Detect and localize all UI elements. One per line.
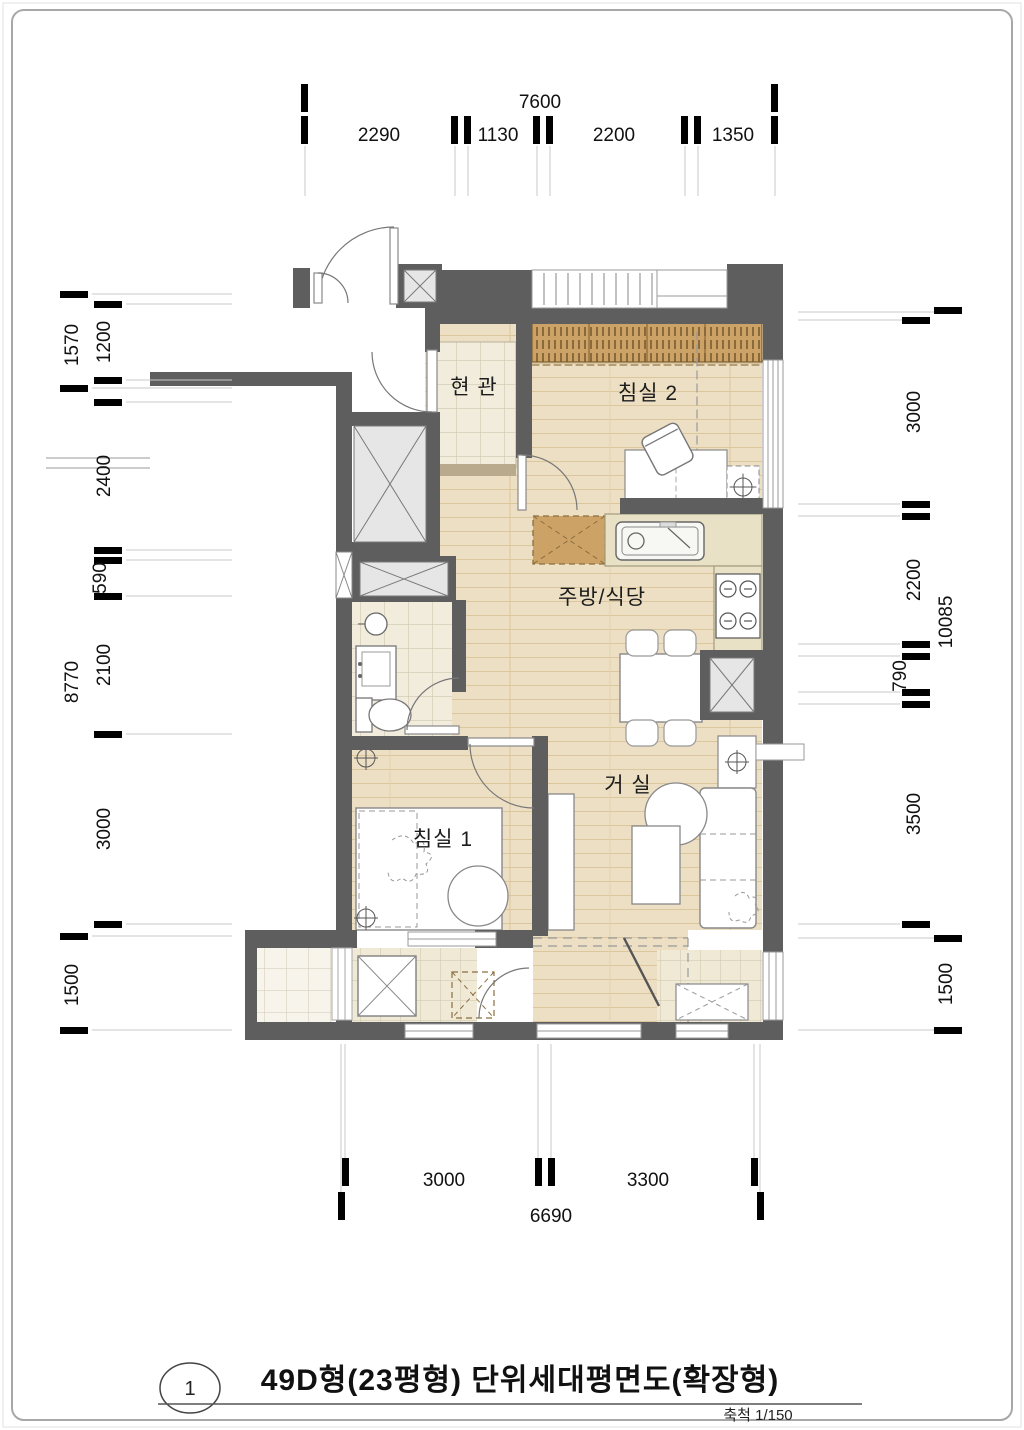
wall-hall-left-block <box>293 268 310 308</box>
dim-top-4: 1350 <box>712 125 754 146</box>
utility-door-arc <box>479 968 529 1018</box>
label-bedroom1: 침실 1 <box>413 828 473 851</box>
wall-top-main <box>425 306 783 324</box>
shower-head <box>365 613 387 635</box>
dim-bottom-total: 6690 <box>530 1206 572 1227</box>
drawing-number: 1 <box>184 1378 195 1400</box>
dim-right-inner-2: 2200 <box>904 559 925 601</box>
kitchen-sink <box>616 522 704 560</box>
entry-tile-floor <box>430 342 516 468</box>
dim-left-inner-5: 3000 <box>94 808 115 850</box>
label-bedroom2: 침실 2 <box>618 382 678 405</box>
dining-table <box>620 654 702 722</box>
drawing-scale: 축척 1/150 <box>723 1407 792 1424</box>
dim-left-inner-4: 2100 <box>94 644 115 686</box>
dim-top-2: 1130 <box>478 125 519 146</box>
drawing-title: 49D형(23평형) 단위세대평면도(확장형) <box>261 1364 780 1397</box>
wall-neighbor-stub <box>150 372 352 386</box>
entry-door-arc <box>372 352 432 412</box>
label-living: 거 실 <box>604 774 651 797</box>
round-chair <box>448 866 508 926</box>
dim-right-inner-3: 790 <box>890 660 911 692</box>
hall-door-arc-large <box>318 227 394 303</box>
dim-left-outer-2: 8770 <box>62 661 83 703</box>
balcony-window-right <box>763 952 783 1020</box>
dim-top-total: 7600 <box>519 92 561 113</box>
dim-bottom-2: 3300 <box>627 1170 669 1191</box>
sofa <box>700 788 756 928</box>
label-kitchen: 주방/식당 <box>558 586 646 609</box>
dim-right-inner-1: 3000 <box>904 391 925 433</box>
dim-left-outer-3: 1500 <box>62 964 83 1006</box>
tv-cabinet <box>548 794 574 930</box>
coffee-table <box>632 826 680 904</box>
wall-vent <box>756 744 804 760</box>
balcony-divider-window <box>332 948 352 1020</box>
dim-left-inner-1: 1200 <box>94 321 115 363</box>
dim-left-outer-1: 1570 <box>62 324 83 366</box>
dim-left-inner-2: 2400 <box>94 455 115 497</box>
dim-top-3: 2200 <box>593 125 635 146</box>
entry-step <box>430 464 516 476</box>
title-block: 1 49D형(23평형) 단위세대평면도(확장형) 축척 1/150 <box>158 1363 862 1424</box>
floor-plan-sheet: 현 관 침실 2 주방/식당 거 실 침실 1 <box>0 0 1024 1430</box>
dim-top-1: 2290 <box>358 125 400 146</box>
dim-right-inner-4: 3500 <box>904 793 925 835</box>
dim-left-inner-3: 590 <box>90 562 111 594</box>
louver-window <box>532 270 657 308</box>
dim-right-outer-1: 10085 <box>936 596 957 649</box>
toilet <box>356 698 411 732</box>
dim-right-outer-2: 1500 <box>936 963 957 1005</box>
label-entry: 현 관 <box>450 376 497 399</box>
neighbor-balcony-floor <box>247 948 332 1022</box>
floor-plan-drawing: 현 관 침실 2 주방/식당 거 실 침실 1 <box>0 0 1024 1430</box>
dim-bottom-1: 3000 <box>423 1170 465 1191</box>
wall-bed1-living <box>532 736 548 936</box>
